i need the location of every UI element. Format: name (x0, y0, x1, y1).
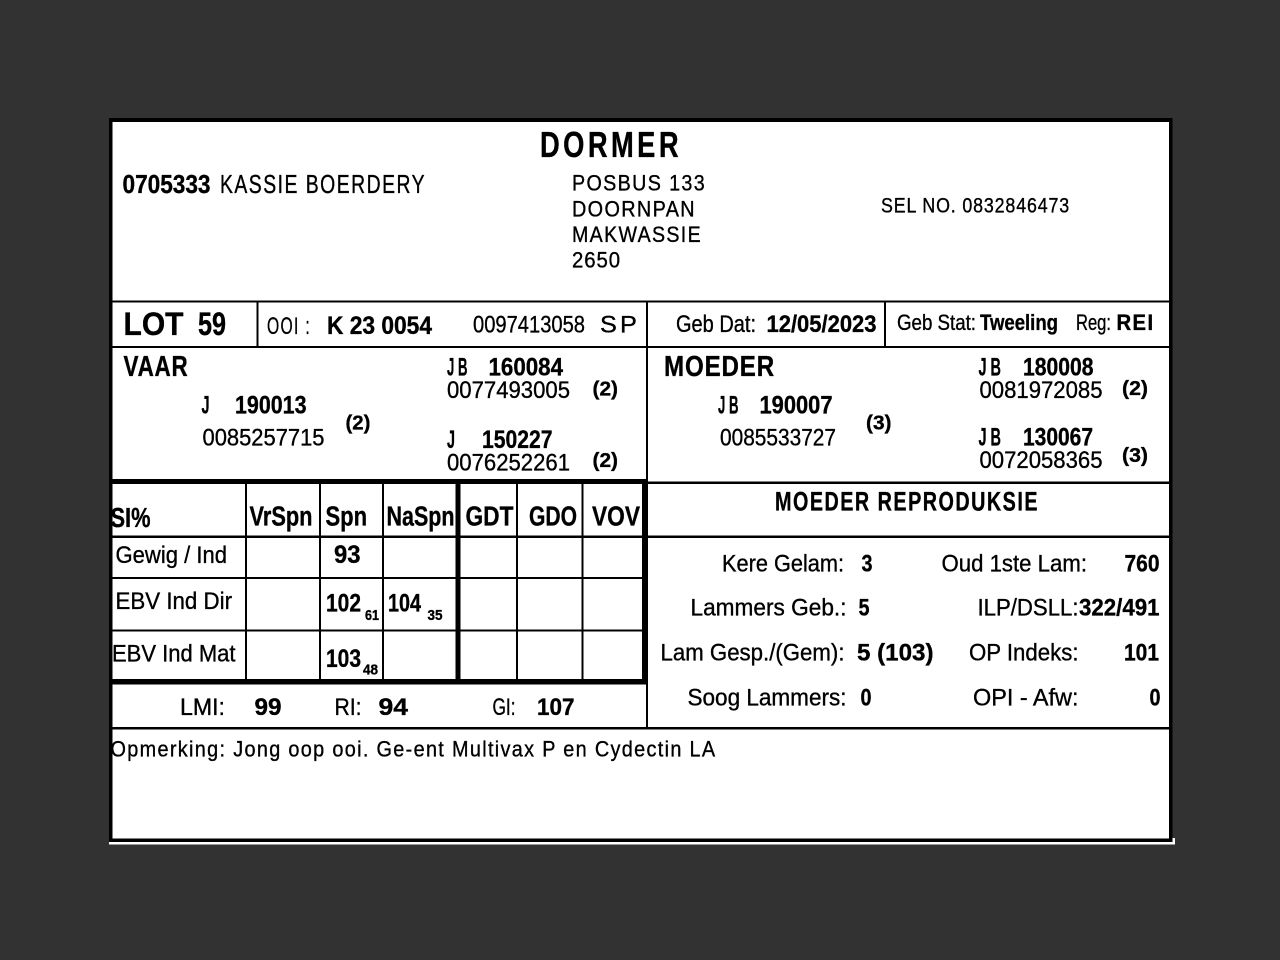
svg-text:0072058365: 0072058365 (980, 447, 1103, 474)
svg-text:GDT: GDT (466, 501, 514, 532)
svg-text:0705333: 0705333 (123, 169, 211, 199)
svg-text:LOT: LOT (124, 306, 184, 342)
svg-text:Spn: Spn (326, 501, 368, 532)
svg-text:MOEDER REPRODUKSIE: MOEDER REPRODUKSIE (775, 487, 1039, 517)
svg-text:POSBUS 133: POSBUS 133 (572, 171, 706, 196)
svg-text:2650: 2650 (572, 248, 621, 273)
svg-text:SP: SP (600, 312, 640, 339)
svg-text:102: 102 (326, 590, 361, 618)
svg-text:12/05/2023: 12/05/2023 (767, 311, 877, 338)
svg-text:VAAR: VAAR (124, 351, 189, 383)
svg-text:101: 101 (1124, 640, 1159, 667)
svg-text:(3): (3) (866, 413, 892, 435)
svg-text:MOEDER: MOEDER (664, 351, 775, 383)
svg-text:(2): (2) (1122, 378, 1148, 400)
svg-text:SI%: SI% (111, 502, 151, 533)
svg-text:VOV: VOV (592, 501, 640, 532)
svg-text:59: 59 (198, 306, 226, 342)
svg-text:Gewig / Ind: Gewig / Ind (116, 542, 228, 569)
svg-text:(2): (2) (346, 413, 371, 435)
svg-text:0077493005: 0077493005 (447, 377, 570, 404)
svg-text:(2): (2) (593, 379, 619, 401)
svg-text:Reg:: Reg: (1076, 310, 1111, 335)
svg-text:760: 760 (1125, 551, 1160, 578)
svg-text:Lam Gesp./(Gem):: Lam Gesp./(Gem): (661, 640, 845, 667)
svg-text:94: 94 (379, 694, 409, 721)
svg-text:0097413058: 0097413058 (473, 312, 585, 339)
svg-text:SEL NO. 0832846473: SEL NO. 0832846473 (881, 195, 1070, 218)
svg-text:5 (103): 5 (103) (857, 640, 934, 667)
svg-text:LMI:: LMI: (180, 694, 225, 721)
svg-text:61: 61 (365, 607, 379, 624)
svg-text:Lammers Geb.:: Lammers Geb.: (691, 595, 847, 622)
svg-text:DORMER: DORMER (540, 124, 682, 165)
svg-text:EBV Ind Mat: EBV Ind Mat (112, 641, 236, 668)
svg-text:GDO: GDO (529, 501, 577, 532)
svg-text:REI: REI (1117, 310, 1155, 335)
svg-text:(2): (2) (593, 450, 619, 472)
svg-text:NaSpn: NaSpn (387, 501, 455, 532)
svg-text:0076252261: 0076252261 (447, 450, 570, 477)
svg-text:Geb Dat:: Geb Dat: (676, 311, 756, 338)
svg-text:Oud 1ste Lam:: Oud 1ste Lam: (942, 551, 1088, 578)
svg-text:OPI - Afw:: OPI - Afw: (973, 685, 1079, 712)
svg-text:(3): (3) (1122, 445, 1148, 467)
svg-text:K 23 0054: K 23 0054 (327, 312, 432, 340)
svg-text:3: 3 (862, 551, 873, 578)
svg-text:MAKWASSIE: MAKWASSIE (572, 222, 702, 247)
svg-text:35: 35 (428, 607, 443, 624)
svg-text:J B: J B (718, 392, 739, 420)
svg-text:322/491: 322/491 (1079, 595, 1160, 622)
svg-text:190013: 190013 (235, 392, 307, 420)
svg-text:EBV Ind Dir: EBV Ind Dir (116, 588, 233, 615)
svg-text:ILP/DSLL:: ILP/DSLL: (978, 595, 1079, 622)
svg-text:0085533727: 0085533727 (720, 425, 836, 452)
svg-text:107: 107 (537, 694, 575, 721)
svg-text:J: J (202, 392, 210, 420)
svg-text:VrSpn: VrSpn (250, 501, 313, 532)
svg-text:RI:: RI: (335, 694, 362, 721)
svg-text:5: 5 (859, 595, 870, 622)
svg-text:Soog Lammers:: Soog Lammers: (688, 685, 847, 712)
svg-text:Geb Stat:: Geb Stat: (897, 310, 976, 335)
svg-text:99: 99 (255, 694, 282, 721)
svg-text:Tweeling: Tweeling (980, 310, 1058, 335)
svg-text:0: 0 (1150, 685, 1161, 712)
svg-text:103: 103 (326, 645, 361, 673)
svg-text:Opmerking: Jong oop ooi. Ge-en: Opmerking: Jong oop ooi. Ge-ent Multivax… (111, 737, 717, 762)
svg-text:104: 104 (388, 590, 421, 618)
svg-text:GI:: GI: (493, 694, 516, 721)
svg-text:OOI :: OOI : (267, 313, 311, 340)
svg-text:0: 0 (861, 685, 872, 712)
svg-text:Kere Gelam:: Kere Gelam: (722, 551, 844, 578)
svg-text:OP Indeks:: OP Indeks: (969, 640, 1079, 667)
svg-text:0081972085: 0081972085 (980, 377, 1103, 404)
svg-text:KASSIE BOERDERY: KASSIE BOERDERY (220, 169, 426, 199)
svg-text:190007: 190007 (760, 392, 833, 420)
svg-text:DOORNPAN: DOORNPAN (572, 197, 696, 222)
svg-text:0085257715: 0085257715 (203, 425, 325, 452)
svg-text:93: 93 (334, 541, 361, 569)
svg-text:48: 48 (363, 662, 378, 679)
